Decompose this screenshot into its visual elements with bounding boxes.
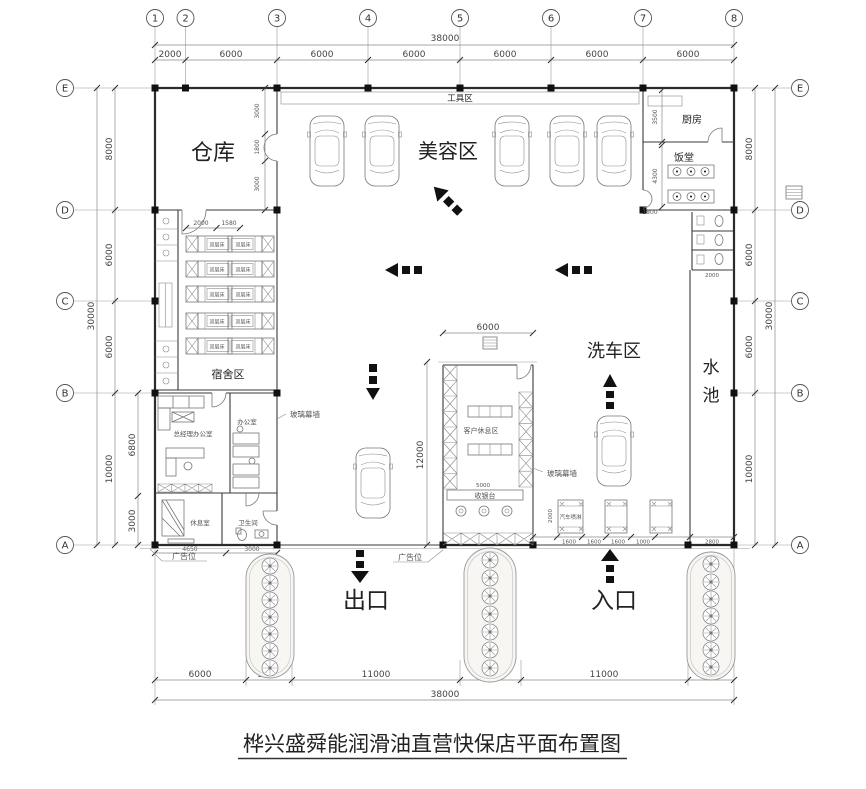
- bunk-bed-label: 双层床: [209, 344, 224, 351]
- dim-dining-depth: 4300: [652, 168, 659, 183]
- car-spray-label: 汽车喷淋: [559, 513, 582, 521]
- bunk-bed-label: 双层床: [209, 319, 224, 326]
- office-furniture: [233, 426, 259, 488]
- beauty-area-label: 美容区: [418, 139, 478, 163]
- dim-right-total: 30000: [765, 301, 775, 330]
- glass-wall-lounge-label: 玻璃幕墙: [547, 468, 577, 478]
- entrance-label: 入口: [591, 588, 637, 614]
- dim-top-6: 6000: [677, 50, 700, 60]
- dim-toilet-width: 2000: [705, 273, 719, 279]
- axis-col-4: 4: [365, 14, 371, 25]
- axis-row-a-left: A: [62, 541, 69, 552]
- tool-area-strip: 工具区: [281, 92, 639, 104]
- axis-col-7: 7: [640, 14, 646, 25]
- customer-lounge-label: 客户休息区: [464, 426, 499, 435]
- dim-dorm-0: 2000: [193, 220, 208, 227]
- dim-office-bottom-1: 3000: [244, 546, 259, 553]
- axis-row-c-left: C: [62, 297, 69, 308]
- dim-office-inner-1: 3000: [128, 509, 138, 532]
- axis-row-d-right: D: [796, 206, 804, 217]
- dimension-chains: 38000 2000 6000 6000 6000 6000 6000 6000…: [87, 34, 778, 705]
- exit-label: 出口: [343, 588, 389, 614]
- axis-grid: 1 2 3 4 5 6 7 8 E D C B A E D C B A: [57, 10, 809, 554]
- kitchen-room: 3500 厨房: [648, 87, 702, 145]
- axis-row-c-right: C: [797, 297, 804, 308]
- axis-row-b-left: B: [62, 389, 69, 400]
- floor-plan-page: 1 2 3 4 5 6 7 8 E D C B A E D C B A 3800…: [0, 0, 866, 789]
- ad-spot-label-1: 广告位: [172, 551, 196, 561]
- dim-warehouse-door-2: 3000: [254, 176, 261, 191]
- floor-plan-canvas: 1 2 3 4 5 6 7 8 E D C B A E D C B A 3800…: [0, 0, 866, 789]
- water-pool-char-2: 池: [703, 386, 720, 406]
- dim-bottom-4: 11000: [590, 670, 619, 680]
- water-pool-char-1: 水: [703, 358, 720, 378]
- bunk-bed-label: 双层床: [235, 344, 250, 351]
- bunk-bed-label: 双层床: [209, 267, 224, 274]
- dim-right-3: 10000: [745, 454, 755, 483]
- ad-spot-note-2: 广告位: [393, 550, 443, 562]
- dim-bottom-2: 11000: [362, 670, 391, 680]
- glass-wall-office-note: 玻璃幕墙: [277, 409, 320, 419]
- dim-spray-4: 2800: [705, 540, 719, 546]
- axis-col-5: 5: [457, 14, 463, 25]
- rest-room-label: 休息室: [190, 518, 210, 527]
- dim-top-total: 38000: [431, 34, 460, 44]
- arrow-left-2: [555, 263, 592, 277]
- dim-spray-1: 1600: [587, 540, 601, 546]
- water-pool: 水 池: [703, 358, 720, 406]
- kitchen-label: 厨房: [682, 113, 702, 126]
- dim-left-2: 6000: [105, 335, 115, 358]
- office-block: 总经理办公室 办公室 休息室 卫生间 4650 3000 玻璃幕墙: [152, 396, 320, 556]
- hatch-symbol: [786, 186, 802, 199]
- exit-lane-car: [354, 448, 393, 518]
- wash-area-label: 洗车区: [587, 341, 641, 362]
- drawing-title-block: 桦兴盛舜能润滑油直营快保店平面布置图: [238, 732, 627, 759]
- dim-left-0: 8000: [105, 137, 115, 160]
- dim-dorm-1: 1580: [221, 220, 236, 227]
- dim-top-0: 2000: [159, 50, 182, 60]
- beauty-area: 美容区: [308, 116, 634, 186]
- gm-office-label: 总经理办公室: [174, 429, 214, 438]
- dim-kitchen-depth: 3500: [652, 109, 659, 124]
- arrow-down-exit-lane: [366, 364, 380, 400]
- dim-top-3: 6000: [403, 50, 426, 60]
- bunk-bed-label: 双层床: [235, 242, 250, 249]
- ad-spot-label-2: 广告位: [398, 552, 422, 562]
- axis-row-a-right: A: [797, 541, 804, 552]
- dim-spray-depth: 2000: [548, 509, 554, 523]
- toilet-room-label: 卫生间: [238, 518, 258, 527]
- dim-top-2: 6000: [311, 50, 334, 60]
- dim-top-4: 6000: [494, 50, 517, 60]
- drawing-title: 桦兴盛舜能润滑油直营快保店平面布置图: [243, 732, 621, 756]
- dim-lounge-width: 6000: [477, 323, 500, 333]
- arrow-left-1: [385, 263, 422, 277]
- dim-left-total: 30000: [87, 301, 97, 330]
- dorm-label: 宿舍区: [212, 367, 245, 381]
- dim-office-inner-0: 6800: [128, 433, 138, 456]
- dim-bottom-total: 38000: [431, 690, 460, 700]
- dim-right-0: 8000: [745, 137, 755, 160]
- exit-marking: 出口: [343, 550, 389, 614]
- bunk-bed-label: 双层床: [235, 319, 250, 326]
- dim-lounge-height: 12000: [416, 440, 426, 469]
- warehouse-label: 仓库: [191, 141, 235, 166]
- dim-left-3: 10000: [105, 454, 115, 483]
- site-landscape: 广告位 广告位 出口 入口: [140, 548, 750, 682]
- dim-right-2: 6000: [745, 335, 755, 358]
- cashier-label: 收银台: [475, 491, 496, 500]
- flow-arrows: [366, 181, 592, 400]
- dim-top-5: 6000: [586, 50, 609, 60]
- arrow-diagonal: [428, 181, 465, 218]
- planter-1: [246, 554, 294, 678]
- sign-hatch-symbol: [483, 337, 497, 349]
- dim-spray-2: 1600: [611, 540, 625, 546]
- bunk-bed-label: 双层床: [209, 242, 224, 249]
- bunk-bed-label: 双层床: [209, 292, 224, 299]
- axis-col-8: 8: [731, 14, 737, 25]
- dim-bottom-0: 6000: [189, 670, 212, 680]
- dim-right-1: 6000: [745, 243, 755, 266]
- axis-row-e-right: E: [797, 84, 803, 95]
- glass-wall-lounge-note: 玻璃幕墙: [533, 468, 577, 478]
- arrow-up-wash: [603, 374, 617, 409]
- dormitory: 双层床 双层床 双层床 双层床 双层床 双层床 双层床 双层床 双层床 双层床 …: [155, 218, 274, 384]
- axis-col-2: 2: [182, 14, 188, 25]
- glass-wall-office-label: 玻璃幕墙: [290, 409, 320, 419]
- axis-col-3: 3: [274, 14, 280, 25]
- planter-2: [464, 548, 516, 682]
- dim-warehouse-door-0: 3000: [254, 103, 261, 118]
- office-label: 办公室: [237, 417, 257, 426]
- entrance-marking: 入口: [591, 549, 637, 614]
- dim-spray-0: 1600: [562, 540, 576, 546]
- axis-row-e-left: E: [62, 84, 68, 95]
- planter-3: [687, 552, 735, 680]
- axis-col-1: 1: [152, 14, 158, 25]
- dining-room: 4300 饭堂 1800: [642, 142, 714, 216]
- tool-area-label: 工具区: [447, 94, 473, 104]
- ad-spot-note-1: 广告位: [150, 549, 207, 561]
- warehouse-room: 仓库 3000 1800 3000: [191, 85, 268, 213]
- dim-spray-3: 1000: [636, 540, 650, 546]
- dim-left-1: 6000: [105, 243, 115, 266]
- dining-label: 饭堂: [674, 152, 694, 164]
- dim-warehouse-door-1: 1800: [254, 139, 261, 154]
- axis-row-b-right: B: [797, 389, 804, 400]
- dim-dining-door: 1800: [642, 209, 657, 216]
- axis-col-6: 6: [548, 14, 554, 25]
- dim-top-1: 6000: [220, 50, 243, 60]
- bunk-bed-label: 双层床: [235, 267, 250, 274]
- door-swings: [182, 128, 722, 525]
- toilet-room-fixtures: [236, 528, 268, 541]
- rest-room-furniture: [162, 500, 194, 543]
- axis-row-d-left: D: [61, 206, 69, 217]
- dim-cashier-width: 5000: [476, 483, 490, 489]
- bunk-bed-label: 双层床: [235, 292, 250, 299]
